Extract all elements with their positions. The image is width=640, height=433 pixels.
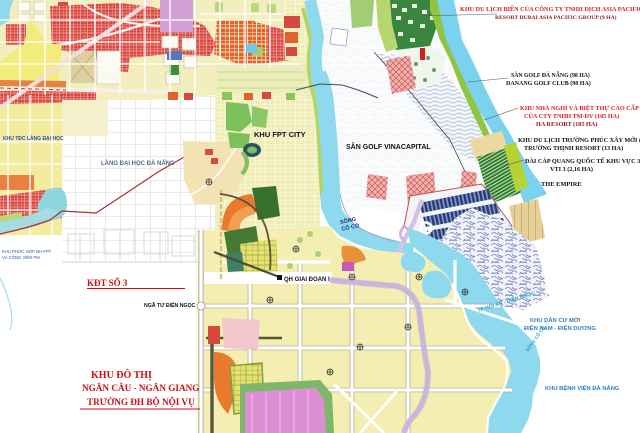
svg-text:TRƯỜNG ĐH BỘ NỘI VỤ: TRƯỜNG ĐH BỘ NỘI VỤ xyxy=(87,397,195,407)
svg-text:SÂN GOLF VINACAPITAL: SÂN GOLF VINACAPITAL xyxy=(346,142,431,151)
svg-text:KHU TĐC LÀNG ĐẠI HỌC: KHU TĐC LÀNG ĐẠI HỌC xyxy=(3,135,64,142)
svg-text:NGÂN CÂU - NGÂN GIANG: NGÂN CÂU - NGÂN GIANG xyxy=(82,383,199,393)
svg-text:KHU ĐÔ THỊ: KHU ĐÔ THỊ xyxy=(91,368,152,381)
svg-text:VÀ CÔNG VIÊN PM: VÀ CÔNG VIÊN PM xyxy=(2,255,40,260)
svg-text:KHU DU LỊCH TRƯỜNG PHÚC XÂY MỚ: KHU DU LỊCH TRƯỜNG PHÚC XÂY MỚI (13 HA) xyxy=(518,136,640,144)
svg-text:HA RESORT (105 HA): HA RESORT (105 HA) xyxy=(536,121,597,128)
svg-text:NGÃ TƯ ĐIỆN NGỌC: NGÃ TƯ ĐIỆN NGỌC xyxy=(144,301,196,309)
svg-text:RESORT DUBAI ASIA PACIFIC GROU: RESORT DUBAI ASIA PACIFIC GROUP (9 HA) xyxy=(495,14,617,21)
svg-text:KHU BỆNH VIỆN ĐÀ NẴNG: KHU BỆNH VIỆN ĐÀ NẴNG xyxy=(545,384,620,392)
svg-text:CỦA CTY TNHH TM-DV (105 HA): CỦA CTY TNHH TM-DV (105 HA) xyxy=(524,112,619,120)
svg-text:KHU NHÀ NGHỈ VÀ BIỆT THỰ CAO C: KHU NHÀ NGHỈ VÀ BIỆT THỰ CAO CẤP xyxy=(520,104,639,112)
svg-text:KHU PHỨC HỢP ĐH FPT: KHU PHỨC HỢP ĐH FPT xyxy=(2,249,52,254)
svg-text:DANANG GOLF CLUB (98 HA): DANANG GOLF CLUB (98 HA) xyxy=(506,80,591,87)
svg-text:KHU DÂN CƯ MỚI: KHU DÂN CƯ MỚI xyxy=(530,316,581,324)
svg-text:SÂN GOLF ĐÀ NẴNG (98 HA): SÂN GOLF ĐÀ NẴNG (98 HA) xyxy=(511,71,590,79)
svg-text:ĐIỆN NAM - ĐIỆN DƯƠNG: ĐIỆN NAM - ĐIỆN DƯƠNG xyxy=(524,324,596,332)
svg-text:KHU DU LỊCH BIỂN CỦA CÔNG TY T: KHU DU LỊCH BIỂN CỦA CÔNG TY TNHH DỊCH A… xyxy=(460,5,640,13)
svg-text:QH GIAI ĐOẠN I: QH GIAI ĐOẠN I xyxy=(284,277,330,283)
svg-text:THE EMPIRE: THE EMPIRE xyxy=(541,181,582,188)
svg-text:LÀNG ĐẠI HỌC ĐÀ NẴNG: LÀNG ĐẠI HỌC ĐÀ NẴNG xyxy=(101,160,175,167)
svg-text:KĐT SỐ 3: KĐT SỐ 3 xyxy=(87,278,128,288)
svg-text:VTI 3 (2,16 HA): VTI 3 (2,16 HA) xyxy=(550,166,593,173)
svg-text:KHU FPT CITY: KHU FPT CITY xyxy=(254,130,306,139)
svg-text:TRƯỜNG THỊNH RESORT (13 HA): TRƯỜNG THỊNH RESORT (13 HA) xyxy=(524,144,623,152)
svg-text:ĐÀI CÁP QUANG QUỐC TẾ KHU VỰC: ĐÀI CÁP QUANG QUỐC TẾ KHU VỰC 3 xyxy=(525,157,640,165)
